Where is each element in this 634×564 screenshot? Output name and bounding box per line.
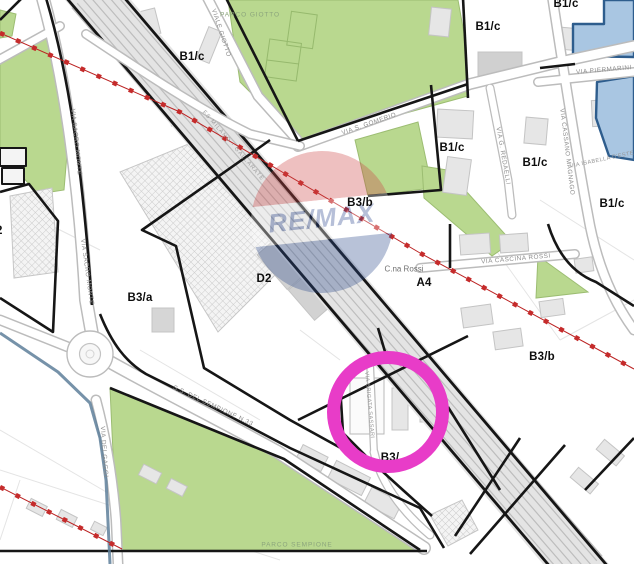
- watermark-balloon: RE/MAX: [244, 144, 400, 300]
- map-canvas: RE/MAX B1/cB1/cB1/cB1/cB1/cB1/cB3/bB3/bB…: [0, 0, 634, 564]
- blue-zone-south: [596, 76, 634, 160]
- roundabout: [67, 331, 113, 377]
